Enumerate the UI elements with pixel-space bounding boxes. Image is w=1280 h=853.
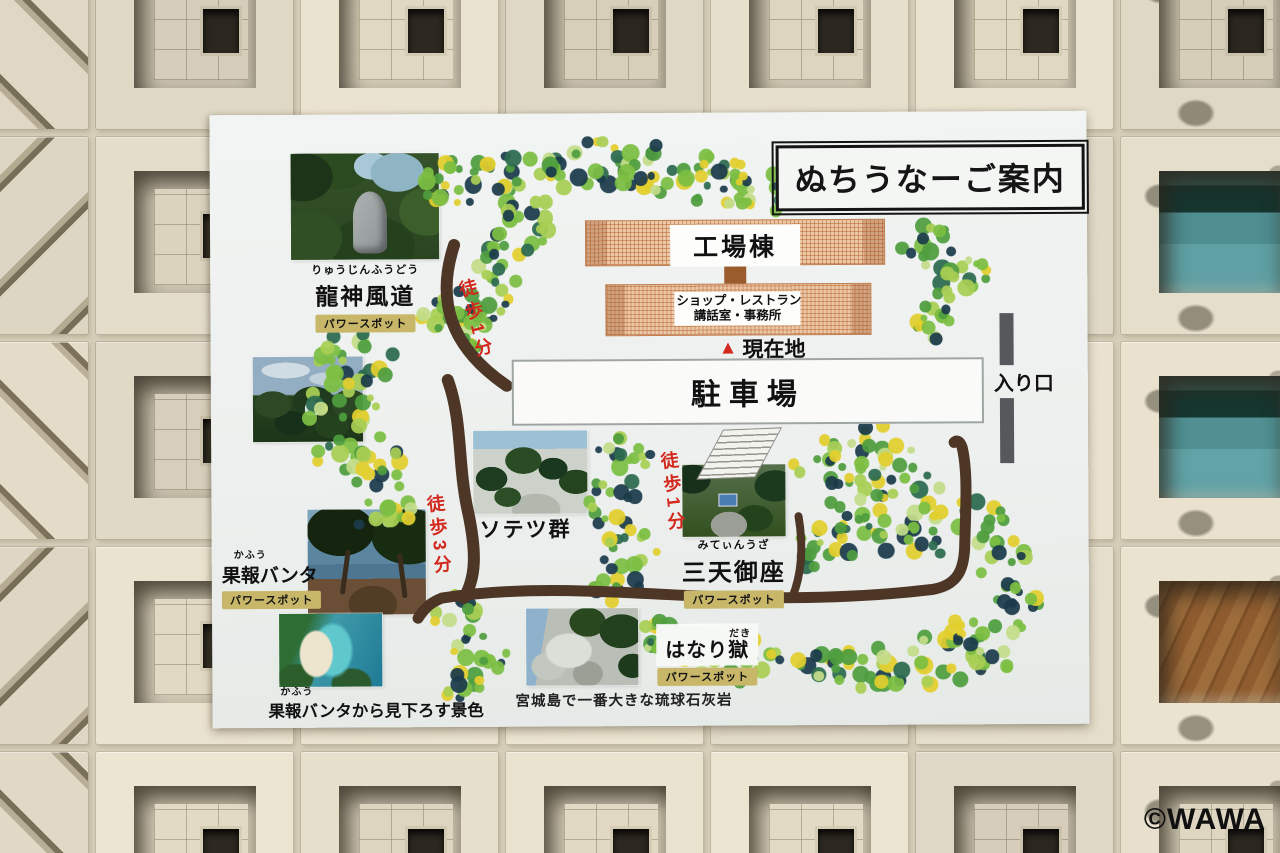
tree-dot — [925, 302, 939, 316]
block-hole — [339, 786, 461, 853]
tree-dot — [941, 636, 956, 651]
tree-dot — [454, 199, 461, 206]
tree-dot — [1009, 580, 1020, 591]
tree-dot — [654, 186, 667, 199]
tree-dot — [854, 515, 863, 524]
tree-dot — [977, 530, 990, 543]
tree-dot — [495, 284, 508, 297]
tree-dot — [917, 232, 930, 245]
tree-dot — [362, 467, 376, 481]
tree-dot — [977, 258, 989, 270]
view-name: 果報バンタから見下ろす景色 — [268, 696, 568, 722]
tree-dot — [442, 613, 457, 628]
tree-dot — [855, 493, 867, 505]
tree-dot — [703, 182, 711, 190]
tree-dot — [840, 543, 858, 561]
tree-dot — [502, 210, 513, 221]
tree-dot — [504, 219, 513, 228]
inner-wall — [974, 0, 1068, 80]
tree-dot — [613, 484, 630, 501]
inner-wall-hole — [1023, 9, 1059, 53]
tree-dot — [597, 136, 608, 147]
tree-dot — [731, 173, 748, 190]
tree-dot — [730, 169, 741, 180]
tree-dot — [609, 509, 626, 526]
tree-dot — [958, 279, 975, 296]
tree-dot — [374, 467, 390, 483]
tree-dot — [587, 502, 597, 512]
tree-dot — [767, 651, 776, 660]
tree-dot — [914, 656, 930, 672]
tree-dot — [1028, 590, 1044, 606]
tree-dot — [505, 199, 518, 212]
tree-dot — [549, 153, 562, 166]
tree-dot — [600, 555, 609, 564]
tree-dot — [933, 505, 948, 520]
tree-dot — [878, 452, 893, 467]
tree-dot — [811, 667, 826, 682]
tree-dot — [699, 160, 708, 169]
walk-time-label: 徒歩1分 — [655, 450, 690, 536]
tree-dot — [620, 168, 630, 178]
spot-kafu-banta: かふう 果報バンタ パワースポット — [222, 546, 322, 610]
tree-dot — [636, 179, 653, 196]
tree-dot — [649, 139, 662, 152]
tree-dot — [619, 588, 627, 596]
breeze-block — [916, 0, 1113, 129]
tree-dot — [627, 571, 644, 588]
tree-dot — [972, 647, 985, 660]
photo-kafu-banta — [307, 509, 426, 615]
tree-dot — [928, 541, 937, 550]
tree-dot — [529, 196, 542, 209]
tree-dot — [915, 217, 933, 235]
entrance-wall-bar — [1000, 398, 1014, 463]
tree-dot — [828, 438, 839, 449]
tree-dot — [451, 665, 468, 682]
spot-mitin-uza: みてぃんうざ 三天御座 パワースポット — [659, 536, 809, 609]
tree-dot — [618, 167, 626, 175]
tree-dot — [951, 518, 969, 536]
tree-dot — [721, 196, 733, 208]
tree-dot — [998, 645, 1011, 658]
tree-dot — [827, 658, 837, 668]
tree-dot — [371, 360, 388, 377]
tree-dot — [944, 316, 954, 326]
tree-dot — [857, 526, 871, 540]
tree-dot — [719, 160, 730, 171]
tree-dot — [942, 263, 960, 281]
tree-dot — [620, 533, 629, 542]
tree-dot — [968, 653, 985, 670]
tree-dot — [634, 554, 647, 567]
tree-dot — [491, 278, 500, 287]
tree-dot — [438, 155, 454, 171]
inner-wall — [769, 804, 863, 853]
tree-dot — [743, 198, 752, 207]
tree-dot — [795, 467, 806, 478]
inner-wall-hole — [1228, 9, 1264, 53]
tree-dot — [355, 461, 371, 477]
tree-dot — [963, 273, 976, 286]
spot-sotetsu-name: ソテツ群 — [479, 513, 571, 543]
photo-forest-view — [253, 357, 363, 443]
tree-dot — [960, 506, 970, 516]
tree-dot — [857, 481, 872, 496]
tree-dot — [1002, 662, 1012, 672]
block-hole — [1159, 0, 1280, 88]
tree-dot — [907, 505, 924, 522]
tree-dot — [456, 598, 463, 605]
tree-dot — [461, 635, 470, 644]
tree-dot — [963, 637, 978, 652]
tree-dot — [957, 629, 966, 638]
tree-dot — [854, 458, 865, 469]
tree-dot — [638, 452, 647, 461]
tree-dot — [311, 444, 325, 458]
tree-dot — [832, 667, 847, 682]
tree-dot — [741, 176, 752, 187]
tree-dot — [450, 589, 460, 599]
tree-dot — [875, 440, 891, 456]
small-blue-sign — [719, 495, 736, 506]
tree-dot — [921, 320, 936, 335]
tree-dot — [734, 192, 745, 203]
tree-dot — [356, 447, 372, 463]
tree-dot — [811, 520, 827, 536]
tree-dot — [736, 159, 746, 169]
photo-sotetsu-gun — [473, 430, 587, 514]
tree-dot — [537, 210, 554, 227]
tree-dot — [1025, 593, 1036, 604]
tree-dot — [918, 250, 929, 261]
tree-dot — [926, 223, 935, 232]
tree-dot — [543, 152, 556, 165]
tree-dot — [498, 194, 516, 212]
tree-dot — [875, 675, 892, 692]
tree-dot — [829, 650, 845, 666]
tree-dot — [567, 145, 583, 161]
tree-dot — [479, 656, 487, 664]
breeze-block — [301, 752, 498, 853]
kafu-name: 果報バンタ — [222, 561, 322, 589]
tree-dot — [496, 307, 506, 317]
tree-dot — [922, 243, 932, 253]
tree-dot — [501, 151, 511, 161]
tree-dot — [546, 166, 557, 177]
tree-dot — [362, 450, 376, 464]
tree-dot — [937, 228, 945, 236]
inner-wall — [359, 0, 453, 80]
kafu-furigana: かふう — [222, 546, 322, 562]
tree-dot — [839, 463, 847, 471]
tree-dot — [443, 161, 457, 175]
inner-wall-hole — [203, 9, 239, 53]
tree-dot — [1001, 577, 1015, 591]
block-hole — [954, 786, 1076, 853]
tree-dot — [730, 158, 740, 168]
tree-dot — [480, 157, 495, 172]
tree-dot — [810, 650, 822, 662]
tree-dot — [694, 163, 704, 173]
inner-wall — [1179, 0, 1273, 80]
tree-dot — [718, 168, 730, 180]
tree-dot — [541, 157, 558, 174]
tree-dot — [997, 514, 1006, 523]
tree-dot — [648, 172, 655, 179]
tree-dot — [620, 156, 637, 173]
tree-dot — [596, 573, 611, 588]
tree-dot — [941, 305, 951, 315]
tree-dot — [880, 531, 888, 539]
tree-dot — [378, 367, 393, 382]
tree-dot — [707, 168, 715, 176]
tree-dot — [618, 166, 630, 178]
tree-dot — [497, 179, 513, 195]
tree-dot — [948, 615, 962, 629]
tree-dot — [862, 438, 876, 452]
tree-dot — [490, 228, 504, 242]
tree-dot — [871, 641, 885, 655]
tree-dot — [976, 567, 987, 578]
tree-dot — [934, 259, 951, 276]
inner-wall — [769, 0, 863, 80]
hanari-furigana: だき — [729, 624, 751, 639]
tree-dot — [976, 633, 985, 642]
tree-dot — [1013, 619, 1023, 629]
tree-dot — [609, 543, 618, 552]
tree-dot — [747, 186, 755, 194]
tree-dot — [953, 671, 969, 687]
tree-dot — [588, 582, 600, 594]
breeze-block — [0, 0, 88, 129]
tree-dot — [1008, 558, 1015, 565]
ryujin-furigana: りゅうじんふうどう — [270, 261, 460, 278]
tree-dot — [903, 535, 913, 545]
tree-dot — [822, 548, 835, 561]
tree-dot — [854, 474, 867, 487]
tree-dot — [935, 548, 945, 558]
tree-dot — [997, 594, 1012, 609]
tree-dot — [503, 294, 513, 304]
tree-dot — [639, 528, 651, 540]
tree-dot — [896, 523, 909, 536]
tree-dot — [628, 159, 641, 172]
tree-dot — [855, 463, 866, 474]
tree-dot — [872, 528, 888, 544]
tree-dot — [492, 226, 507, 241]
tree-dot — [878, 514, 892, 528]
tree-dot — [604, 594, 618, 608]
palm-trunk — [340, 549, 351, 594]
tree-dot — [871, 474, 885, 488]
spot-ryujin-fudo: りゅうじんふうどう 龍神風道 パワースポット — [270, 261, 460, 333]
tree-dot — [465, 607, 481, 623]
tree-dot — [720, 185, 728, 193]
tree-dot — [592, 137, 601, 146]
tree-dot — [944, 623, 962, 641]
tree-dot — [947, 664, 956, 673]
white-dome — [305, 401, 319, 416]
tree-dot — [826, 456, 836, 466]
tree-dot — [488, 159, 495, 166]
tree-dot — [842, 510, 853, 521]
tree-dot — [588, 582, 605, 599]
tree-dot — [921, 315, 928, 322]
tree-dot — [906, 248, 916, 258]
tree-dot — [492, 263, 505, 276]
tree-dot — [512, 247, 526, 261]
tree-dot — [936, 230, 950, 244]
tree-dot — [743, 194, 756, 207]
tree-dot — [451, 668, 465, 682]
tree-dot — [842, 524, 851, 533]
factory-label: 工場棟 — [670, 224, 800, 267]
tree-dot — [833, 479, 843, 489]
tree-dot — [956, 261, 968, 273]
tree-dot — [869, 468, 882, 481]
tree-dot — [829, 456, 836, 463]
tree-dot — [896, 528, 912, 544]
tree-dot — [483, 161, 493, 171]
tree-dot — [941, 285, 952, 296]
tree-dot — [914, 656, 928, 670]
breeze-block — [916, 752, 1113, 853]
tree-dot — [775, 655, 784, 664]
tree-dot — [540, 222, 556, 238]
inner-wall — [564, 0, 658, 80]
tree-dot — [971, 535, 986, 550]
tree-dot — [646, 146, 661, 161]
tree-dot — [391, 453, 408, 470]
tree-dot — [497, 178, 513, 194]
tree-dot — [491, 661, 504, 674]
tree-dot — [911, 480, 929, 498]
tree-dot — [445, 155, 457, 167]
block-hole — [339, 0, 461, 88]
tree-dot — [482, 269, 493, 280]
inner-wall — [154, 0, 248, 80]
tree-dot — [450, 648, 458, 656]
tree-dot — [1017, 550, 1032, 565]
tree-dot — [695, 170, 708, 183]
tree-dot — [975, 626, 989, 640]
tree-dot — [638, 176, 655, 193]
tree-dot — [860, 427, 868, 435]
tree-dot — [611, 150, 624, 163]
tree-dot — [920, 301, 932, 313]
tree-dot — [921, 496, 931, 506]
tree-dot — [829, 450, 841, 462]
tree-dot — [895, 241, 909, 255]
tree-dot — [736, 197, 749, 210]
tree-dot — [975, 664, 987, 676]
photo-hanari-daki — [526, 608, 638, 686]
tree-dot — [480, 632, 487, 639]
tree-dot — [909, 483, 920, 494]
tree-dot — [914, 237, 932, 255]
tree-dot — [455, 165, 463, 173]
tree-dot — [977, 656, 985, 664]
breeze-block — [96, 0, 293, 129]
tree-dot — [935, 309, 950, 324]
tree-dot — [636, 532, 646, 542]
tree-dot — [677, 162, 691, 176]
tree-dot — [613, 534, 623, 544]
guide-sign-board: 工場棟 ショップ・レストラン 講話室・事務所 ▲ 現在地 駐車場 入り口 ぬちう… — [209, 111, 1089, 729]
tree-dot — [512, 210, 524, 222]
tree-dot — [454, 184, 464, 194]
tree-dot — [536, 225, 545, 234]
tree-dot — [857, 654, 868, 665]
tree-dot — [990, 536, 1000, 546]
tree-dot — [524, 205, 540, 221]
parking-label: 駐車場 — [691, 369, 805, 414]
tree-dot — [385, 347, 399, 361]
tree-dot — [900, 527, 908, 535]
tree-dot — [571, 149, 581, 159]
tree-dot — [992, 545, 1007, 560]
tree-dot — [639, 620, 652, 633]
tree-dot — [465, 602, 483, 620]
tree-dot — [600, 176, 618, 194]
tree-dot — [944, 291, 956, 303]
tree-dot — [644, 644, 652, 652]
tree-dot — [597, 175, 606, 184]
tree-dot — [855, 682, 867, 694]
tree-dot — [834, 501, 846, 513]
tree-dot — [328, 345, 341, 358]
tree-dot — [745, 199, 755, 209]
tree-dot — [936, 664, 952, 680]
block-hole — [954, 0, 1076, 88]
tree-dot — [914, 321, 924, 331]
tree-dot — [952, 637, 959, 644]
tree-dot — [524, 235, 540, 251]
tree-dot — [613, 433, 624, 444]
tree-dot — [969, 617, 979, 627]
tree-dot — [878, 448, 894, 464]
tree-dot — [704, 151, 715, 162]
tree-dot — [824, 655, 833, 664]
tree-dot — [887, 489, 898, 500]
block-hole — [544, 786, 666, 853]
tree-dot — [486, 272, 498, 284]
tree-dot — [834, 675, 844, 685]
tree-dot — [930, 511, 940, 521]
tree-dot — [1016, 623, 1026, 633]
breeze-block — [506, 752, 703, 853]
tree-dot — [463, 633, 471, 641]
tree-dot — [835, 522, 847, 534]
tree-dot — [613, 584, 624, 595]
tree-dot — [899, 528, 907, 536]
photo-scene: 工場棟 ショップ・レストラン 講話室・事務所 ▲ 現在地 駐車場 入り口 ぬちう… — [0, 0, 1280, 853]
tree-dot — [904, 515, 919, 530]
tree-dot — [892, 458, 907, 473]
tree-dot — [534, 167, 547, 180]
tree-dot — [831, 664, 840, 673]
tree-dot — [1015, 588, 1023, 596]
tree-dot — [814, 529, 822, 537]
tree-dot — [870, 489, 883, 502]
tree-dot — [919, 635, 928, 644]
tree-dot — [615, 155, 629, 169]
view-furigana: かふう — [268, 681, 568, 698]
tree-dot — [611, 458, 628, 475]
tree-dot — [471, 155, 487, 171]
tree-dot — [430, 617, 440, 627]
